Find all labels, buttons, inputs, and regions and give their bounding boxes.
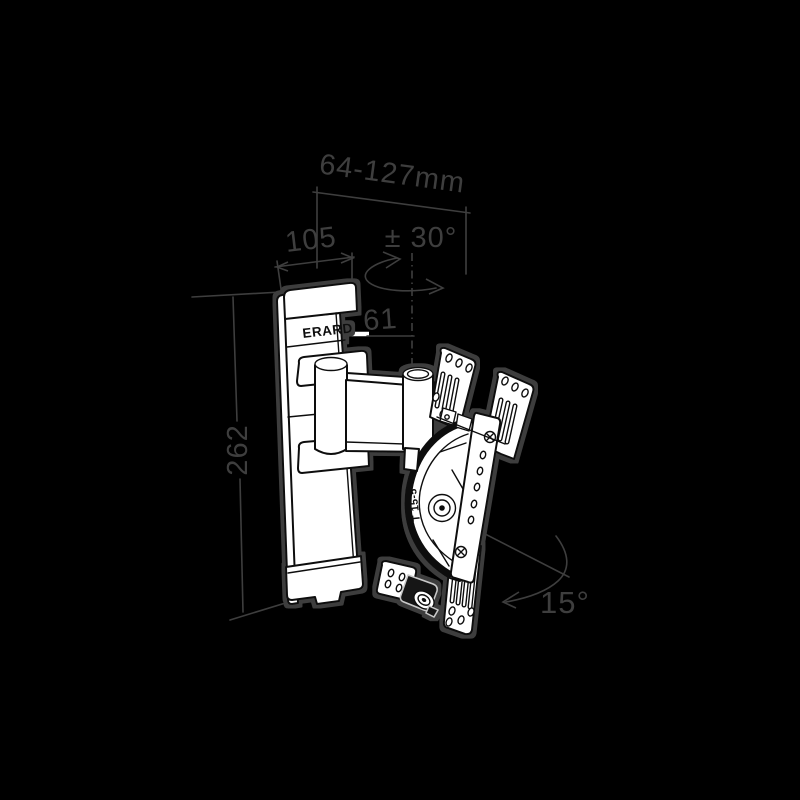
swivel-angle-label: ± 30°: [385, 222, 458, 254]
plate-height-label: 262: [222, 424, 254, 475]
hinge-cylinder-left: [315, 361, 347, 454]
clamp-bolt: [445, 415, 449, 419]
tilt-angle-label: 15°: [540, 585, 590, 620]
phillips-screw-bottom: [456, 547, 467, 558]
plate-width-label: 105: [284, 221, 339, 259]
mount-diagram: 64-127mm 105 ± 30° 61: [0, 0, 800, 800]
pivot-offset-label: 61: [362, 303, 398, 337]
swivel-post: [404, 448, 419, 471]
